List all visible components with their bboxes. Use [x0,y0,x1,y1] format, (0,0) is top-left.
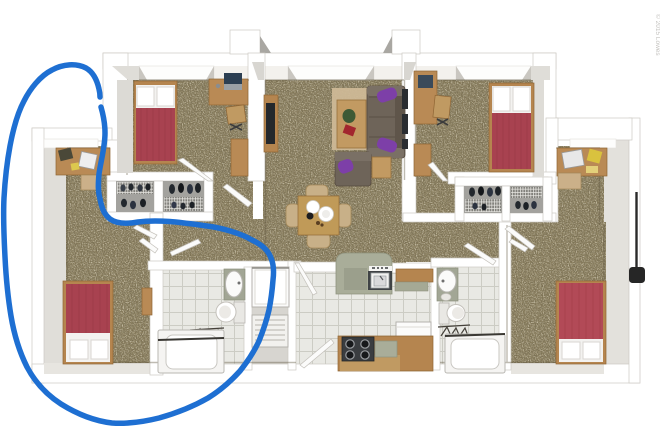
svg-text:© 2015 Lowes: © 2015 Lowes [654,14,660,56]
